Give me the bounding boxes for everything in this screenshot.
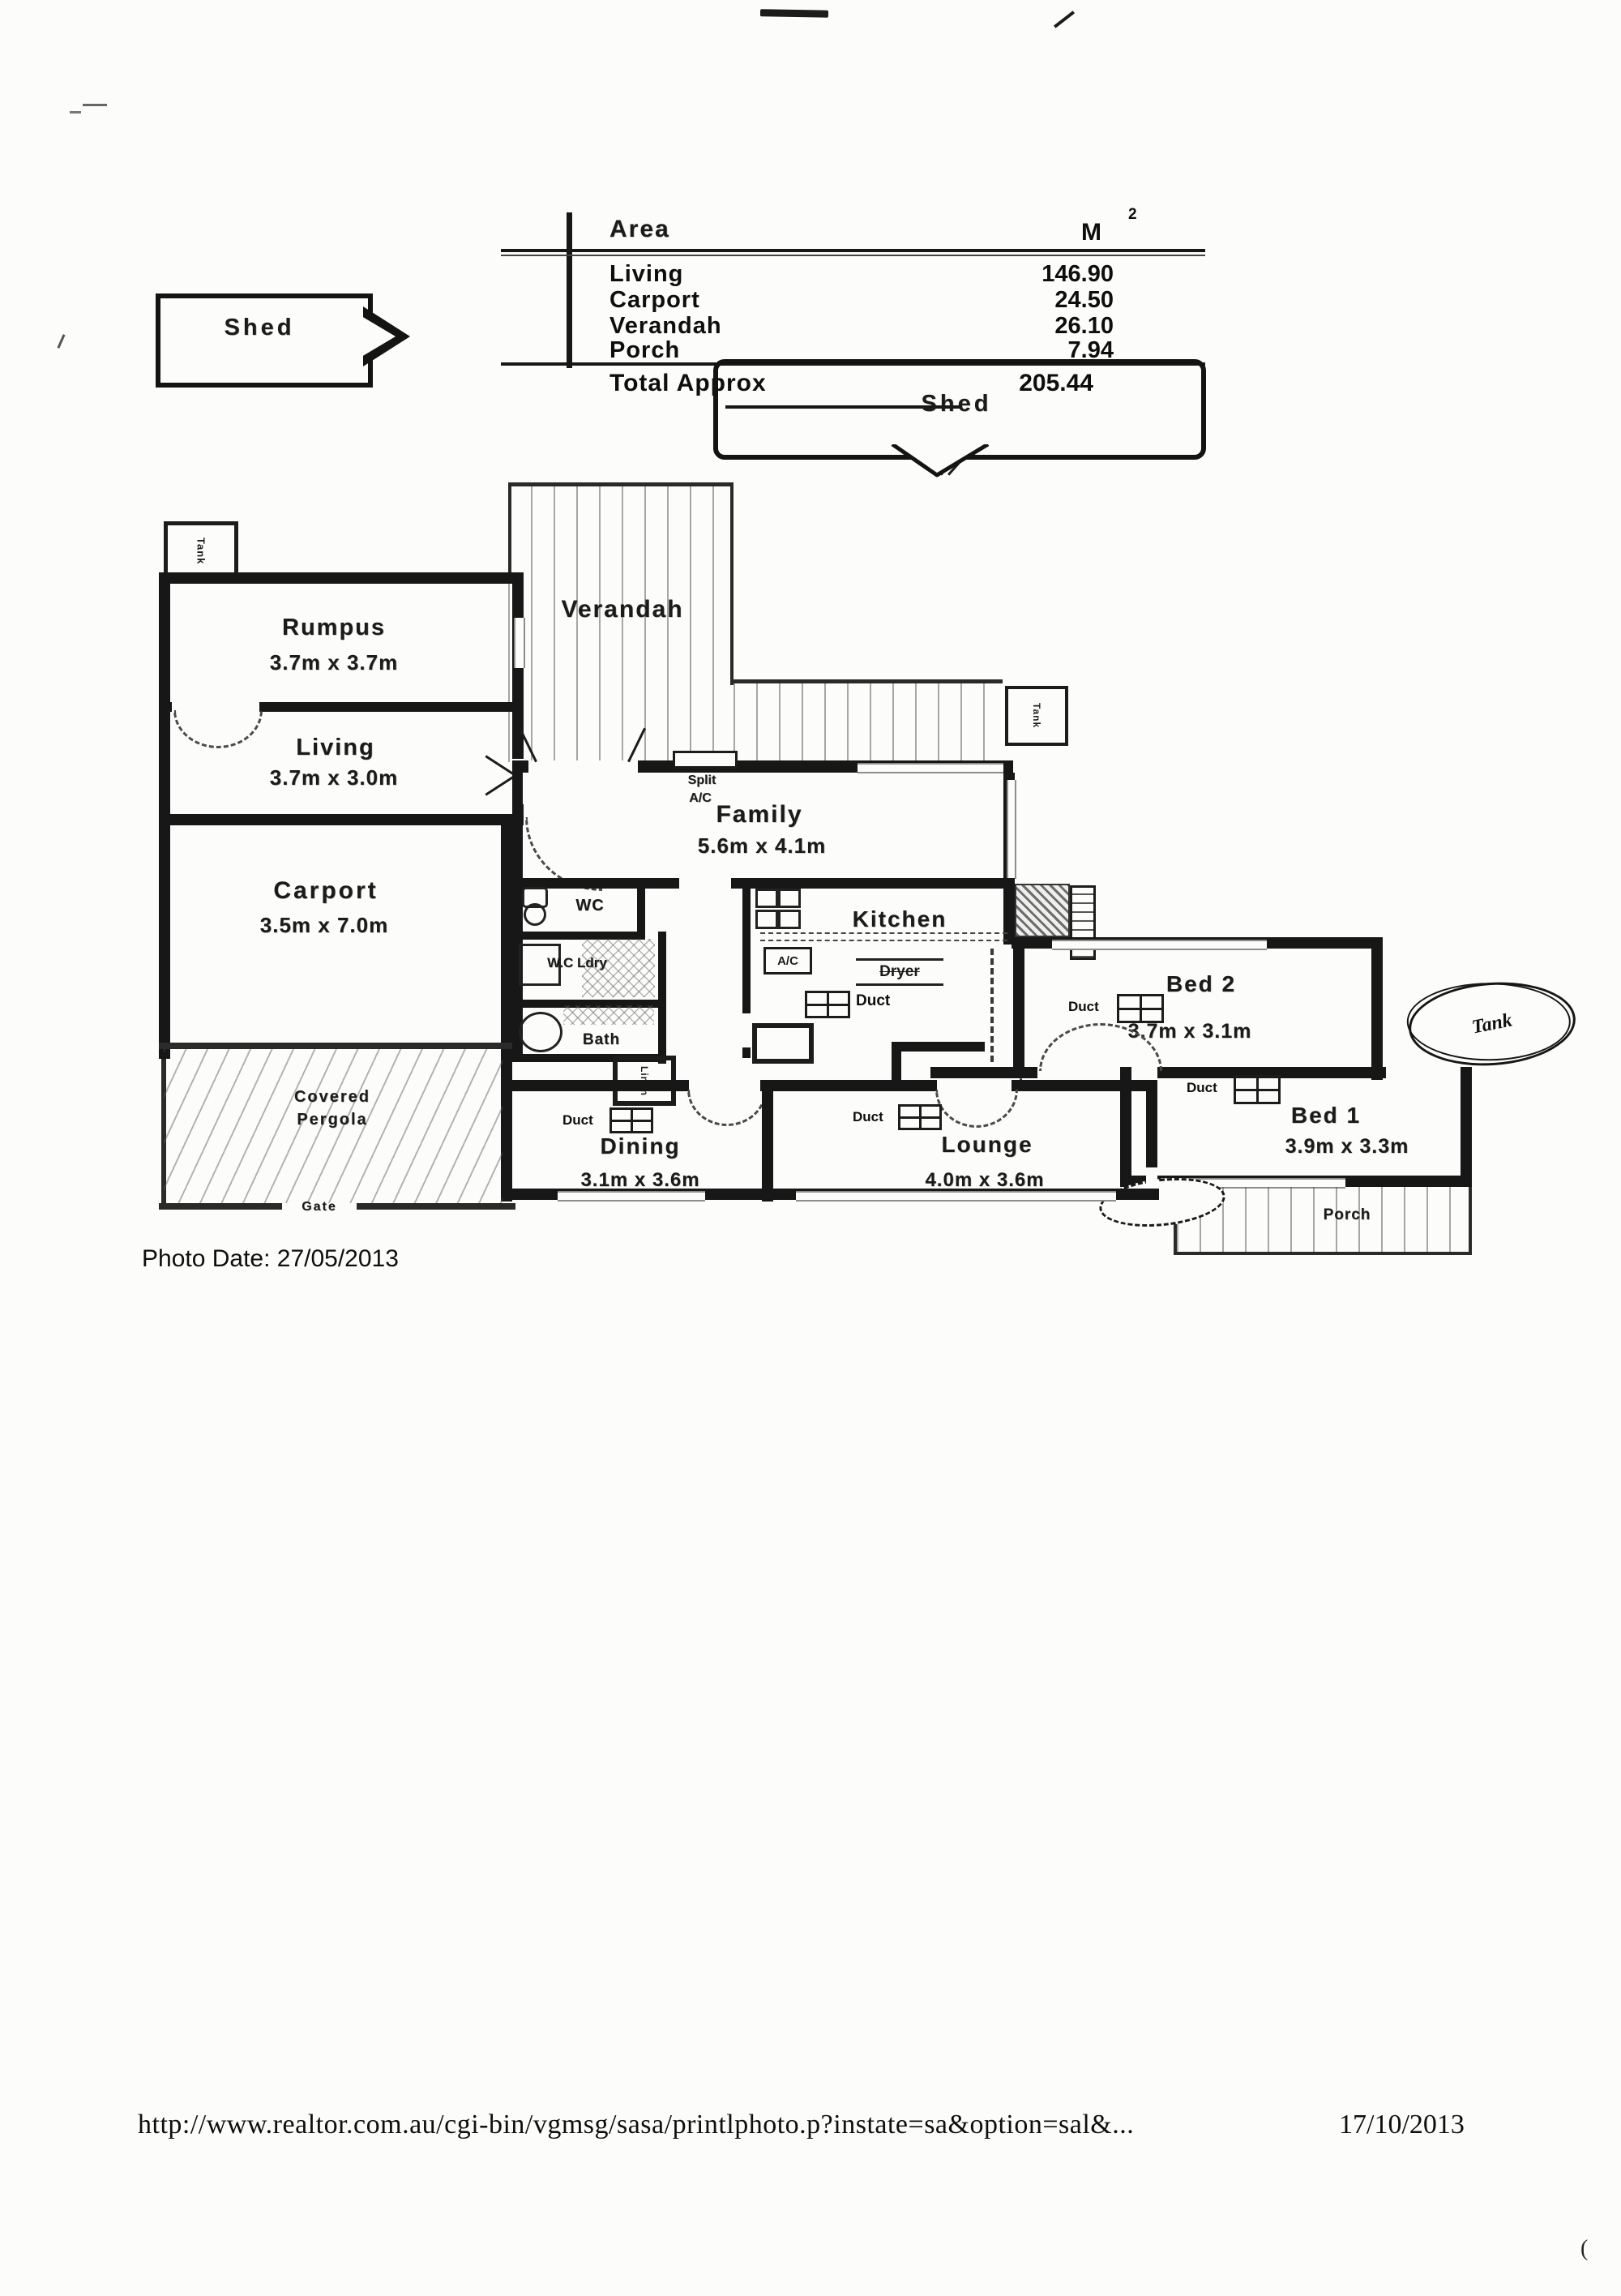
wall [1371, 937, 1383, 1080]
window [558, 1191, 705, 1202]
area-unit-sup: 2 [1128, 206, 1137, 224]
wall [501, 825, 512, 1080]
door-opening [742, 1013, 751, 1047]
door-opening [528, 760, 638, 773]
room-label-lounge: Lounge [941, 1132, 1033, 1158]
room-dims-bed1: 3.9m x 3.3m [1285, 1135, 1409, 1159]
scan-smudge [57, 334, 65, 349]
wall [1461, 1067, 1472, 1187]
area-row-label: Living [609, 261, 683, 288]
table-rule [501, 255, 1205, 256]
wall [1013, 937, 1024, 1069]
door-opening [679, 878, 731, 889]
area-table-vline [567, 212, 572, 368]
wall [892, 1042, 985, 1052]
hot-water-unit [1015, 884, 1070, 937]
bench-dashed-line [760, 932, 1007, 934]
room-label-verandah: Verandah [561, 596, 683, 623]
tank-handwritten-label: Tank [1470, 1009, 1514, 1039]
scan-smudge [760, 9, 828, 17]
room-label-wc-ldry: W.C Ldry [547, 955, 607, 971]
window [1007, 780, 1016, 879]
scan-smudge [83, 104, 107, 106]
room-label-pergola: Pergola [297, 1111, 367, 1129]
dashed-divider [990, 949, 994, 1062]
wall [159, 814, 524, 825]
stove-icon [778, 910, 801, 929]
room-dims-lounge: 4.0m x 3.6m [925, 1169, 1044, 1192]
wall [501, 1080, 512, 1202]
shed-box-notch [890, 444, 995, 483]
room-label-pergola: Covered [294, 1088, 370, 1107]
window [858, 763, 1003, 773]
area-unit: M [1081, 219, 1101, 246]
room-label-living: Living [296, 735, 374, 761]
duct-label: Duct [856, 992, 890, 1010]
wall [637, 878, 645, 940]
porch-edge [1469, 1187, 1472, 1255]
shed-callout-label: Shed [225, 315, 295, 341]
shed-box-label: Shed [922, 391, 992, 418]
room-label-carport: Carport [273, 877, 378, 905]
area-row-value: 24.50 [1054, 287, 1114, 314]
area-table-title: Area [609, 216, 670, 243]
ac-unit-box: A/C [763, 947, 812, 975]
stove-icon [755, 889, 778, 908]
wall [501, 1080, 1149, 1091]
area-row-value: 146.90 [1041, 261, 1114, 288]
footer-date: 17/10/2013 [1339, 2110, 1465, 2140]
room-label-wc: WC [575, 897, 604, 915]
area-row-label: Porch [609, 337, 680, 364]
wall [658, 932, 666, 1009]
wall [512, 773, 523, 1062]
room-label-kitchen: Kitchen [853, 906, 947, 932]
wall [512, 878, 1015, 889]
stove-icon [755, 910, 778, 929]
window [1052, 940, 1267, 950]
room-label-bed1: Bed 1 [1291, 1103, 1361, 1129]
door-swing-arc [173, 710, 263, 748]
scan-smudge: ( [1580, 2236, 1588, 2262]
ac-unit-label: A/C [777, 954, 798, 968]
pantry-box [752, 1023, 814, 1064]
duct-label: Duct [562, 1112, 593, 1129]
wall [159, 572, 524, 584]
duct-label: Duct [853, 1109, 883, 1125]
tank-label: Tank [195, 538, 207, 564]
duct-label: Duct [1187, 1080, 1217, 1096]
area-row-label: Verandah [609, 313, 722, 340]
duct-symbol [805, 991, 850, 1018]
room-dims-dining: 3.1m x 3.6m [580, 1169, 699, 1192]
wall [762, 1080, 773, 1202]
room-dims-rumpus: 3.7m x 3.7m [270, 650, 398, 675]
verandah-edge [508, 482, 511, 576]
duct-symbol [1234, 1075, 1281, 1104]
window [514, 618, 525, 668]
scan-smudge [70, 111, 81, 114]
verandah-edge [730, 482, 734, 685]
room-label-bath: Bath [583, 1031, 620, 1049]
photo-date-text: Photo Date: 27/05/2013 [142, 1245, 399, 1273]
scanned-floorplan-page: ( Area M 2 Living 146.90 Carport 24.50 V… [0, 0, 1621, 2296]
tank-handwritten-circle: Tank [1406, 977, 1579, 1071]
stove-icon [778, 889, 801, 908]
split-ac-unit [673, 751, 738, 769]
area-row-label: Carport [609, 287, 700, 314]
door-swing-arc [935, 1090, 1018, 1128]
gate-label: Gate [302, 1200, 337, 1214]
room-dims-family: 5.6m x 4.1m [698, 833, 826, 859]
door-mark [485, 776, 513, 795]
room-label-rumpus: Rumpus [282, 615, 386, 641]
room-label-family: Family [716, 801, 802, 829]
room-dims-living: 3.7m x 3.0m [270, 765, 398, 790]
shed-callout-arrow-inner [361, 316, 396, 357]
room-dims-carport: 3.5m x 7.0m [260, 913, 388, 938]
room-label-porch: Porch [1324, 1206, 1371, 1224]
bath-tub-icon [519, 1012, 562, 1052]
porch-edge [1174, 1252, 1472, 1255]
shower-area [563, 1005, 654, 1025]
split-ac-label: Split [688, 773, 716, 788]
room-label-dining: Dining [600, 1133, 680, 1159]
scan-smudge [1054, 11, 1075, 28]
tank-label: Tank [1031, 703, 1042, 728]
toilet-icon [524, 903, 546, 926]
duct-symbol [1117, 994, 1164, 1023]
door-swing-arc [687, 1090, 767, 1126]
verandah-edge [508, 482, 734, 486]
verandah-edge [730, 679, 1003, 683]
tank-box-right: Tank [1005, 686, 1068, 746]
duct-symbol [609, 1107, 653, 1133]
bench-dashed-line [760, 940, 1007, 941]
room-label-bed2: Bed 2 [1166, 971, 1236, 997]
duct-label: Duct [1068, 999, 1099, 1015]
footer-url: http://www.realtor.com.au/cgi-bin/vgmsg/… [138, 2110, 1134, 2140]
table-rule [501, 249, 1205, 252]
split-ac-label: A/C [689, 791, 712, 806]
duct-symbol [898, 1104, 942, 1130]
dryer-label: Dryer [856, 958, 943, 986]
verandah-area [734, 681, 1003, 762]
window [796, 1191, 1116, 1202]
pergola-edge [159, 1043, 512, 1049]
area-row-value: 26.10 [1054, 313, 1114, 340]
